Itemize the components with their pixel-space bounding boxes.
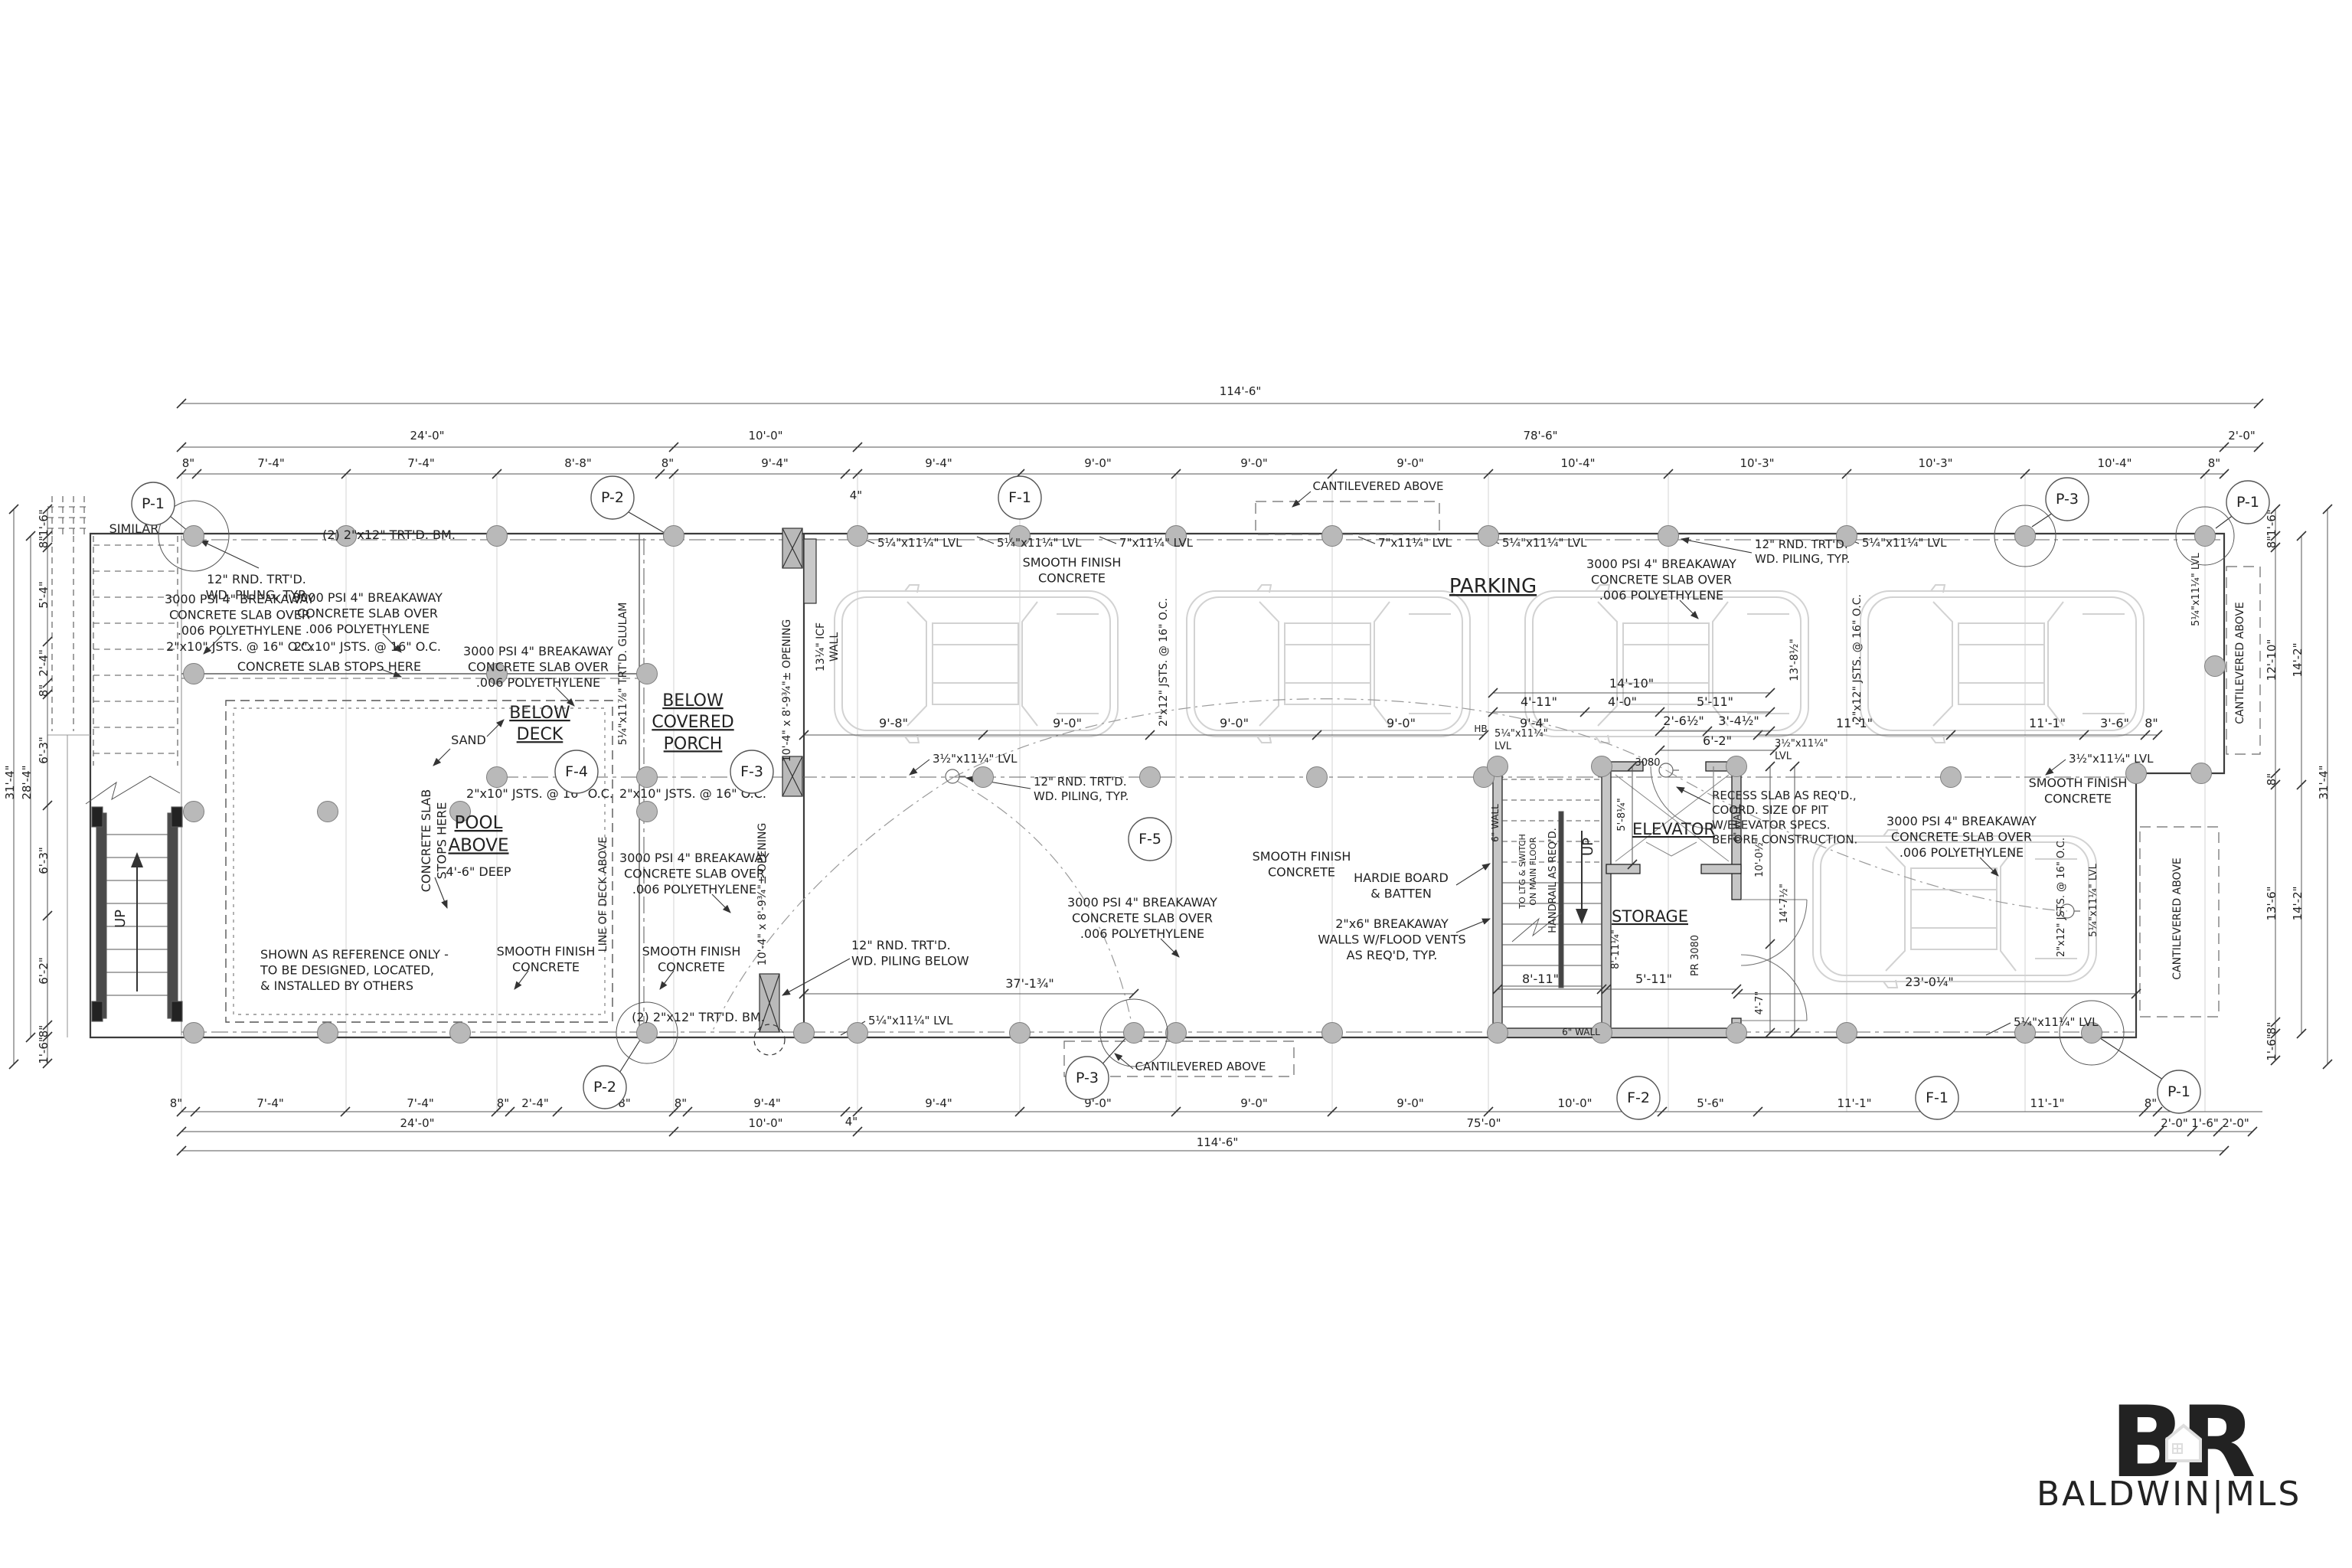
dim-label: 10'-3" <box>1739 456 1774 470</box>
dim-label: 9'-4" <box>925 1096 952 1110</box>
note-label: 2"x12" JSTS. @ 16" O.C. <box>1158 598 1170 727</box>
marker-label: F-5 <box>1138 831 1161 848</box>
note-label: STORAGE <box>1612 907 1688 926</box>
grid-marker-f-5: F-5 <box>1129 818 1171 861</box>
dim-label: 9'-0" <box>1396 1096 1424 1110</box>
marker-label: F-3 <box>740 763 763 780</box>
dim-label: 24'-0" <box>400 1116 434 1130</box>
note-label: 8'-11" <box>1522 972 1559 986</box>
note-label: 5'-8¼" <box>1616 798 1628 831</box>
dim-label: 1'-6" <box>37 509 51 537</box>
dim-label: 2'-4" <box>37 649 51 677</box>
note-label: 5¼"x11¼" LVL <box>868 1014 953 1027</box>
marker-label: F-2 <box>1627 1089 1650 1106</box>
piling <box>637 802 658 822</box>
dim-label: 13'-6" <box>2265 886 2278 920</box>
grid-marker-p-3: P-3 <box>1066 1057 1109 1099</box>
dim-label: 6'-3" <box>37 737 51 764</box>
marker-label: P-1 <box>2167 1083 2190 1100</box>
piling <box>184 802 204 822</box>
note-label: BELOWDECK <box>509 704 570 744</box>
dim-label: 31'-4" <box>3 765 17 799</box>
note-label: 6" WALL <box>1562 1027 1600 1037</box>
dim-label: 114'-6" <box>1220 384 1262 398</box>
dim-label: 10'-4" <box>1560 456 1595 470</box>
piling <box>848 1023 868 1044</box>
dim-label: 24'-0" <box>410 429 444 443</box>
dim-label: 9'-0" <box>1084 456 1112 470</box>
note-label: SAND <box>451 733 486 747</box>
note-label: SMOOTH FINISHCONCRETE <box>497 944 596 974</box>
marker-label: P-1 <box>2236 494 2259 511</box>
note-label: 12" RND. TRT'D.WD. PILING, TYP. <box>1034 775 1129 803</box>
dim-label: 7'-4" <box>256 1096 284 1110</box>
note-label: 3000 PSI 4" BREAKAWAYCONCRETE SLAB OVER.… <box>619 851 769 897</box>
dim-label: 2'-0" <box>2161 1116 2188 1130</box>
dim-label: 14'-2" <box>2291 886 2305 920</box>
note-label: CONCRETE SLABSTOPS HERE <box>419 789 449 892</box>
piling <box>184 526 204 547</box>
note-label: 4'-6" DEEP <box>446 864 511 879</box>
grid-marker-f-4: F-4 <box>555 750 598 793</box>
note-label: 11'-1" <box>2029 716 2066 730</box>
note-label: 13'-8½" <box>1788 639 1801 681</box>
note-label: 2"x10" JSTS. @ 16" O.C. <box>466 786 613 801</box>
note-label: 13¼" ICFWALL <box>815 622 841 671</box>
note-label: 5¼"x11⅞" TRT'D. GLULAM <box>617 603 629 746</box>
piling <box>973 767 994 788</box>
piling <box>184 1023 204 1044</box>
marker-label: P-3 <box>2056 491 2079 508</box>
note-label: 3½"x11¼"LVL <box>1775 738 1828 763</box>
note-label: TO LTG & SWITCHON MAIN FLOOR <box>1517 834 1538 909</box>
piling <box>1837 1023 1857 1044</box>
note-label: 3½"x11¼" LVL <box>2069 752 2154 766</box>
grid-marker-f-1: F-1 <box>998 476 1041 519</box>
dim-label: 9'-0" <box>1396 456 1424 470</box>
grid-marker-f-2: F-2 <box>1617 1076 1660 1119</box>
note-label: (2) 2"x12" TRT'D. BM. <box>632 1010 765 1024</box>
note-label: 3000 PSI 4" BREAKAWAYCONCRETE SLAB OVER.… <box>1586 557 1736 603</box>
piling <box>1010 1023 1031 1044</box>
dim-label: 8" <box>182 456 194 470</box>
dim-label: 7'-4" <box>407 1096 434 1110</box>
grid-marker-p-3: P-3 <box>2046 478 2089 521</box>
note-label: 14'-10" <box>1609 676 1654 691</box>
note-label: ELEVATOR <box>1632 820 1715 838</box>
note-label: BELOWCOVEREDPORCH <box>652 691 733 753</box>
dim-label: 8" <box>170 1096 182 1110</box>
note-label: 3000 PSI 4" BREAKAWAYCONCRETE SLAB OVER.… <box>292 590 443 636</box>
note-label: PR 3080 <box>1690 935 1701 976</box>
dim-label: 4" <box>850 488 862 502</box>
note-label: SHOWN AS REFERENCE ONLY -TO BE DESIGNED,… <box>260 947 449 993</box>
note-label: 3080 <box>1635 757 1660 769</box>
note-label: 5'-11" <box>1697 694 1733 709</box>
note-label: 3000 PSI 4" BREAKAWAYCONCRETE SLAB OVER.… <box>1067 895 1217 941</box>
note-label: HANDRAIL AS REQ'D. <box>1547 828 1559 933</box>
dim-label: 12'-10" <box>2265 639 2278 681</box>
note-label: 3000 PSI 4" BREAKAWAYCONCRETE SLAB OVER.… <box>1886 814 2037 860</box>
note-label: SMOOTH FINISHCONCRETE <box>642 944 741 974</box>
piling <box>1726 1023 1747 1044</box>
note-label: 9'-8" <box>879 716 908 730</box>
note-label: 11'-1" <box>1836 716 1873 730</box>
note-label: CANTILEVERED ABOVE <box>1313 479 1444 493</box>
note-label: SMOOTH FINISHCONCRETE <box>1023 555 1122 585</box>
dim-label: 114'-6" <box>1197 1135 1239 1149</box>
dim-label: 8" <box>37 536 51 548</box>
dim-label: 9'-4" <box>753 1096 781 1110</box>
grid-marker-f-3: F-3 <box>730 750 773 793</box>
note-label: 3'-4½" <box>1718 714 1759 728</box>
dim-label: 8" <box>37 684 51 697</box>
piling <box>1658 526 1679 547</box>
dim-label: 5'-4" <box>37 581 51 609</box>
grid-marker-p-2: P-2 <box>583 1066 626 1109</box>
dim-label: 6'-3" <box>37 847 51 874</box>
note-label: 2"x12" JSTS. @ 16" O.C. <box>1851 594 1864 723</box>
dim-label: 8" <box>497 1096 509 1110</box>
note-label: CANTILEVERED ABOVE <box>1135 1060 1266 1073</box>
dim-label: 8" <box>2265 536 2278 548</box>
marker-label: P-2 <box>601 489 624 506</box>
dim-label: 8" <box>2208 456 2220 470</box>
note-label: 3'-6" <box>2100 716 2129 730</box>
piling <box>637 1023 658 1044</box>
turning-path-arcs <box>712 699 2067 1035</box>
dim-label: 1'-6" <box>37 1037 51 1064</box>
note-label: HARDIE BOARD& BATTEN <box>1354 871 1449 900</box>
dim-label: 75'-0" <box>1466 1116 1501 1130</box>
beam-centerlines <box>181 538 2220 1033</box>
piling <box>848 526 868 547</box>
note-label: 5¼"x11¼" LVL <box>1502 536 1587 550</box>
note-label: 37'-1¾" <box>1005 976 1054 991</box>
dim-label: 14'-2" <box>2291 642 2305 677</box>
grid-marker-p-1: P-1 <box>2226 481 2269 524</box>
dim-label: 8" <box>2265 1022 2278 1034</box>
piling <box>318 802 338 822</box>
note-label: 2'-6½" <box>1663 714 1704 728</box>
dim-label: 7'-4" <box>257 456 285 470</box>
piling <box>318 1023 338 1044</box>
dim-label: 10'-4" <box>2097 456 2131 470</box>
note-label: PARKING <box>1449 575 1537 598</box>
note-label: 4'-11" <box>1521 694 1557 709</box>
grid-marker-p-1: P-1 <box>132 482 175 525</box>
piling <box>2015 526 2036 547</box>
piling <box>2195 526 2216 547</box>
dim-label: 10'-0" <box>1557 1096 1592 1110</box>
piling <box>1941 767 1962 788</box>
piling <box>1592 756 1612 777</box>
note-label: 10'-0½" <box>1754 838 1766 877</box>
note-label: 8'-11¼" <box>1610 929 1622 969</box>
note-label: SMOOTH FINISHCONCRETE <box>2029 776 2128 805</box>
note-label: 10'-4" x 8'-9¾"± OPENING <box>781 619 793 762</box>
dim-label: 2'-4" <box>521 1096 549 1110</box>
note-label: 7"x11¼" LVL <box>1378 536 1452 550</box>
note-label: 5¼"x11¼" LVL <box>877 536 962 550</box>
piling <box>1488 756 1508 777</box>
piling <box>2191 763 2212 784</box>
note-label: RECESS SLAB AS REQ'D.,COORD. SIZE OF PIT… <box>1712 789 1857 847</box>
piling <box>637 664 658 684</box>
dim-label: 2'-0" <box>2228 429 2256 443</box>
note-label: 2"x12" JSTS. @ 16" O.C. <box>2056 838 2067 957</box>
marker-label: P-1 <box>142 495 165 512</box>
note-label: (2) 2"x12" TRT'D. BM. <box>322 528 456 542</box>
grid-markers: P-1P-2F-1P-3P-1F-4F-3F-5P-2P-3F-2F-1P-1 <box>132 476 2269 1119</box>
marker-label: F-4 <box>565 763 588 780</box>
piling <box>664 526 684 547</box>
dim-label: 31'-4" <box>2317 765 2331 799</box>
note-label: UP <box>1580 838 1596 856</box>
dim-label: 10'-0" <box>748 1116 782 1130</box>
piling <box>1307 767 1328 788</box>
dim-label: 78'-6" <box>1523 429 1557 443</box>
dim-label: 10'-0" <box>748 429 782 443</box>
note-label: 4'-7" <box>1754 991 1766 1015</box>
piling <box>1488 1023 1508 1044</box>
piling <box>487 526 508 547</box>
note-label: 7"x11¼" LVL <box>1119 536 1194 550</box>
dim-label: 8" <box>675 1096 687 1110</box>
dim-label: 11'-1" <box>2030 1096 2064 1110</box>
note-label: HB <box>1474 724 1487 734</box>
marker-label: P-2 <box>593 1079 616 1096</box>
note-label: 9'-0" <box>1220 716 1249 730</box>
baldwin-mls-watermark: B R BALDWIN|MLS <box>2037 1386 2301 1514</box>
note-label: 8" <box>2145 716 2158 730</box>
dim-label: 9'-0" <box>1240 456 1268 470</box>
note-label: 9'-0" <box>1387 716 1416 730</box>
note-label: 6" WALL <box>1490 804 1501 842</box>
piling <box>1322 526 1343 547</box>
note-label: POOLABOVE <box>448 813 508 855</box>
note-label: 5¼"x11¼" LVL <box>1862 536 1947 550</box>
dim-label: 5'-6" <box>1697 1096 1724 1110</box>
note-label: CONCRETE SLAB STOPS HERE <box>237 659 421 674</box>
note-label: 12" RND. TRT'D.WD. PILING BELOW <box>851 938 969 968</box>
note-label: CANTILEVERED ABOVE <box>2234 602 2246 724</box>
piling <box>1726 756 1747 777</box>
piling <box>2205 656 2226 677</box>
note-label: 12" RND. TRT'D.WD. PILING, TYP. <box>1755 537 1850 566</box>
piling <box>1478 526 1499 547</box>
dim-label: 2'-0" <box>2222 1116 2249 1130</box>
dim-label: 6'-2" <box>37 957 51 985</box>
dim-label: 8" <box>661 456 674 470</box>
note-label: LINE OF DECK ABOVE <box>597 837 609 952</box>
marker-label: F-1 <box>1008 489 1031 506</box>
note-label: 23'-0¼" <box>1905 975 1954 989</box>
piling <box>450 1023 471 1044</box>
note-label: 6'-2" <box>1703 733 1732 748</box>
piling <box>487 767 508 788</box>
note-label: 5¼"x11¼" LVL <box>2014 1015 2099 1029</box>
note-label: UP <box>113 910 129 928</box>
dim-label: 9'-4" <box>925 456 952 470</box>
grid-marker-p-1: P-1 <box>2158 1070 2200 1113</box>
exterior-stair <box>47 496 182 1037</box>
piling <box>637 767 658 788</box>
piling <box>184 664 204 684</box>
grid-marker-f-1: F-1 <box>1916 1076 1958 1119</box>
piling <box>794 1023 815 1044</box>
floor-plan-svg: 114'-6"24'-0"10'-0"78'-6"2'-0"8"7'-4"7'-… <box>0 0 2352 1568</box>
watermark-name: BALDWIN|MLS <box>2037 1475 2301 1514</box>
marker-label: F-1 <box>1926 1089 1949 1106</box>
dim-label: 28'-4" <box>20 765 34 799</box>
note-label: 10'-4" x 8'-9¾"± OPENING <box>756 823 769 965</box>
dim-label: 4" <box>845 1115 857 1129</box>
piling <box>1124 1023 1145 1044</box>
dim-label: 1'-6" <box>2265 1034 2278 1061</box>
piling <box>1322 1023 1343 1044</box>
note-label: 5¼"x11¼" LVL <box>2190 552 2202 626</box>
dim-label: 8" <box>2265 773 2278 786</box>
note-label: SMOOTH FINISHCONCRETE <box>1253 849 1351 879</box>
note-label: 3½"x11¼" LVL <box>933 752 1018 766</box>
note-label: 3000 PSI 4" BREAKAWAYCONCRETE SLAB OVER.… <box>463 644 613 690</box>
piling <box>1140 767 1161 788</box>
note-label: 14'-7½" <box>1779 884 1790 923</box>
note-label: 2"x6" BREAKAWAYWALLS W/FLOOD VENTSAS REQ… <box>1318 916 1465 962</box>
dim-label: 9'-0" <box>1240 1096 1268 1110</box>
grid-marker-p-2: P-2 <box>591 476 634 519</box>
note-label: 2"x10" JSTS. @ 16" O.C. <box>294 639 441 654</box>
dim-label: 8'-8" <box>564 456 592 470</box>
note-label: 9'-0" <box>1053 716 1082 730</box>
note-label: 4'-0" <box>1608 694 1637 709</box>
note-label: 5'-11" <box>1635 972 1672 986</box>
piling <box>1166 1023 1187 1044</box>
note-label: 2"x10" JSTS. @ 16" O.C. <box>166 639 313 654</box>
floor-plan-page: 114'-6"24'-0"10'-0"78'-6"2'-0"8"7'-4"7'-… <box>0 0 2352 1568</box>
note-labels: SIMILAR12" RND. TRT'D.WD. PILING, TYP.(2… <box>109 479 2246 1073</box>
dim-label: 9'-4" <box>761 456 789 470</box>
note-label: CANTILEVERED ABOVE <box>2171 857 2184 980</box>
dim-label: 10'-3" <box>1918 456 1952 470</box>
piling <box>2126 763 2147 784</box>
note-label: 5¼"x11¼" LVL <box>997 536 1082 550</box>
marker-label: P-3 <box>1076 1070 1099 1086</box>
dim-label: 11'-1" <box>1837 1096 1871 1110</box>
dim-label: 8" <box>2145 1096 2157 1110</box>
note-label: 5¼"x11¼"LVL <box>1494 728 1548 753</box>
dim-label: 8" <box>37 1025 51 1037</box>
dim-label: 1'-6" <box>2191 1116 2219 1130</box>
dim-label: 7'-4" <box>407 456 435 470</box>
note-label: 5¼"x11¼" LVL <box>2088 863 2099 937</box>
